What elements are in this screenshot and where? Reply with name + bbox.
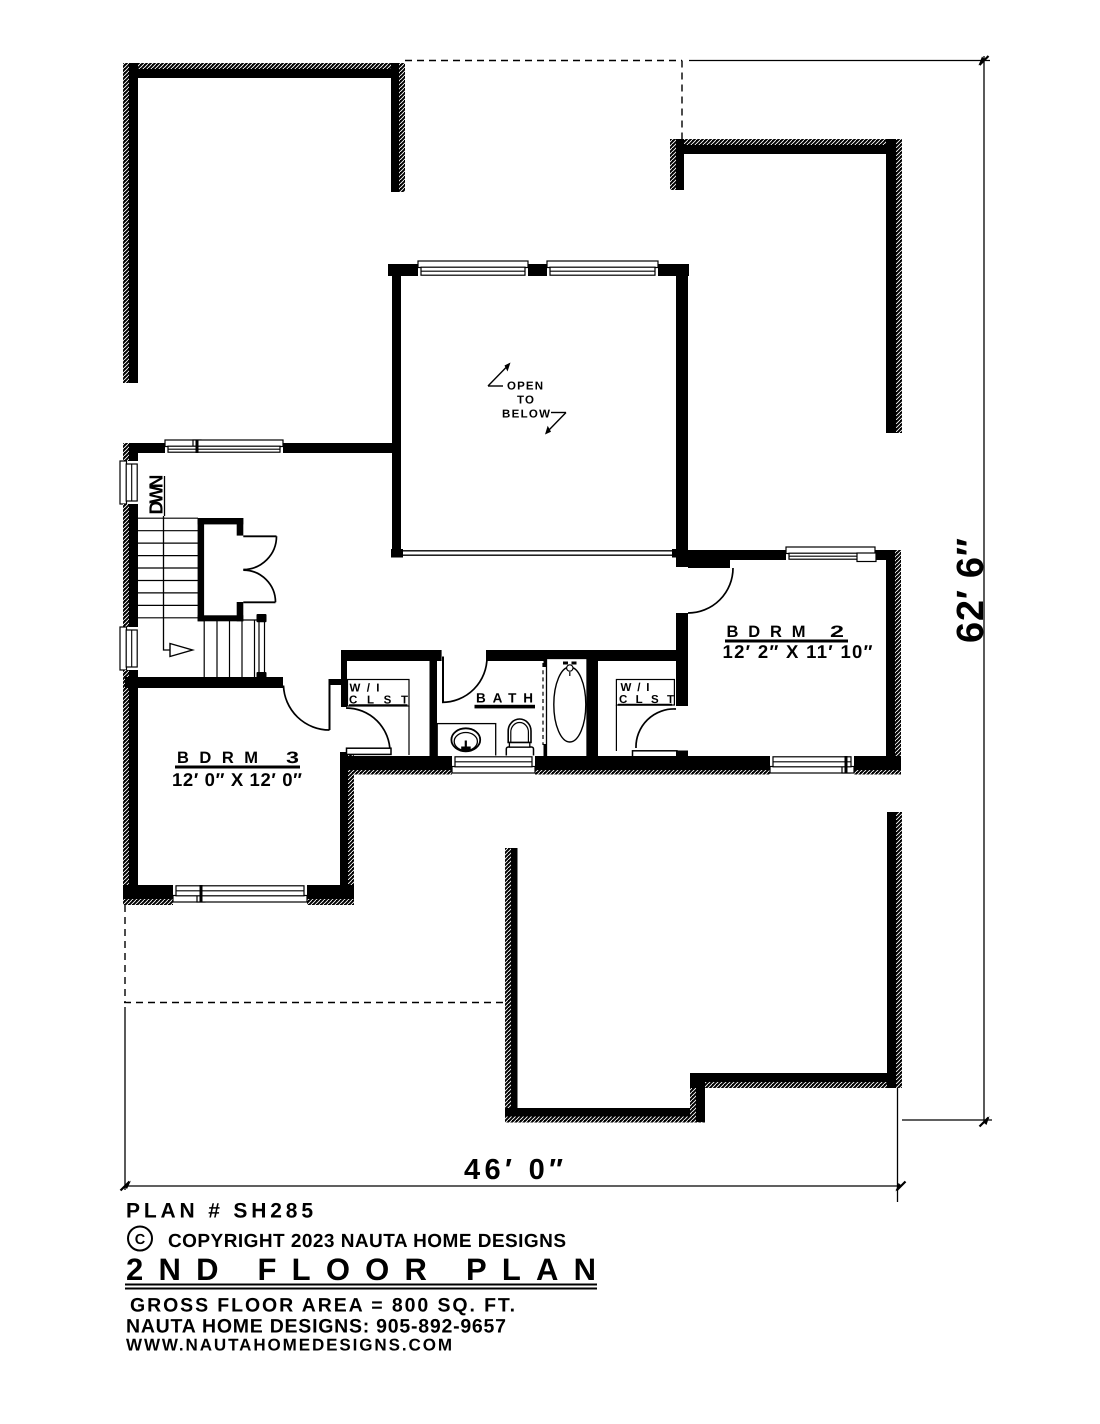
svg-text:BELOW: BELOW [502,409,550,421]
svg-text:62′ 6″: 62′ 6″ [950,538,992,643]
svg-text:3: 3 [286,749,299,767]
svg-text:GROSS FLOOR AREA = 800 SQ.: GROSS FLOOR AREA = 800 SQ. FT. [130,1295,515,1317]
svg-text:B D R M: B D R M [727,623,806,641]
svg-text:PLAN # SH285: PLAN # SH285 [126,1200,313,1223]
svg-text:2: 2 [830,623,844,641]
svg-text:WWW.NAUTAHOMEDESIGNS.COM: WWW.NAUTAHOMEDESIGNS.COM [126,1336,452,1355]
svg-text:OPEN: OPEN [507,381,543,393]
svg-text:C: C [135,1232,146,1248]
svg-text:NAUTA HOME DESIGNS: 905-892-9: NAUTA HOME DESIGNS: 905-892-9657 [126,1316,506,1338]
svg-text:COPYRIGHT 2023 NAUTA HOME DESI: COPYRIGHT 2023 NAUTA HOME DESIGNS [168,1231,566,1252]
svg-text:12′ 0″ X 12′ 0″: 12′ 0″ X 12′ 0″ [172,769,302,790]
svg-text:TO: TO [517,395,534,407]
svg-text:12′ 2″ X 11′ 10″: 12′ 2″ X 11′ 10″ [723,641,873,662]
